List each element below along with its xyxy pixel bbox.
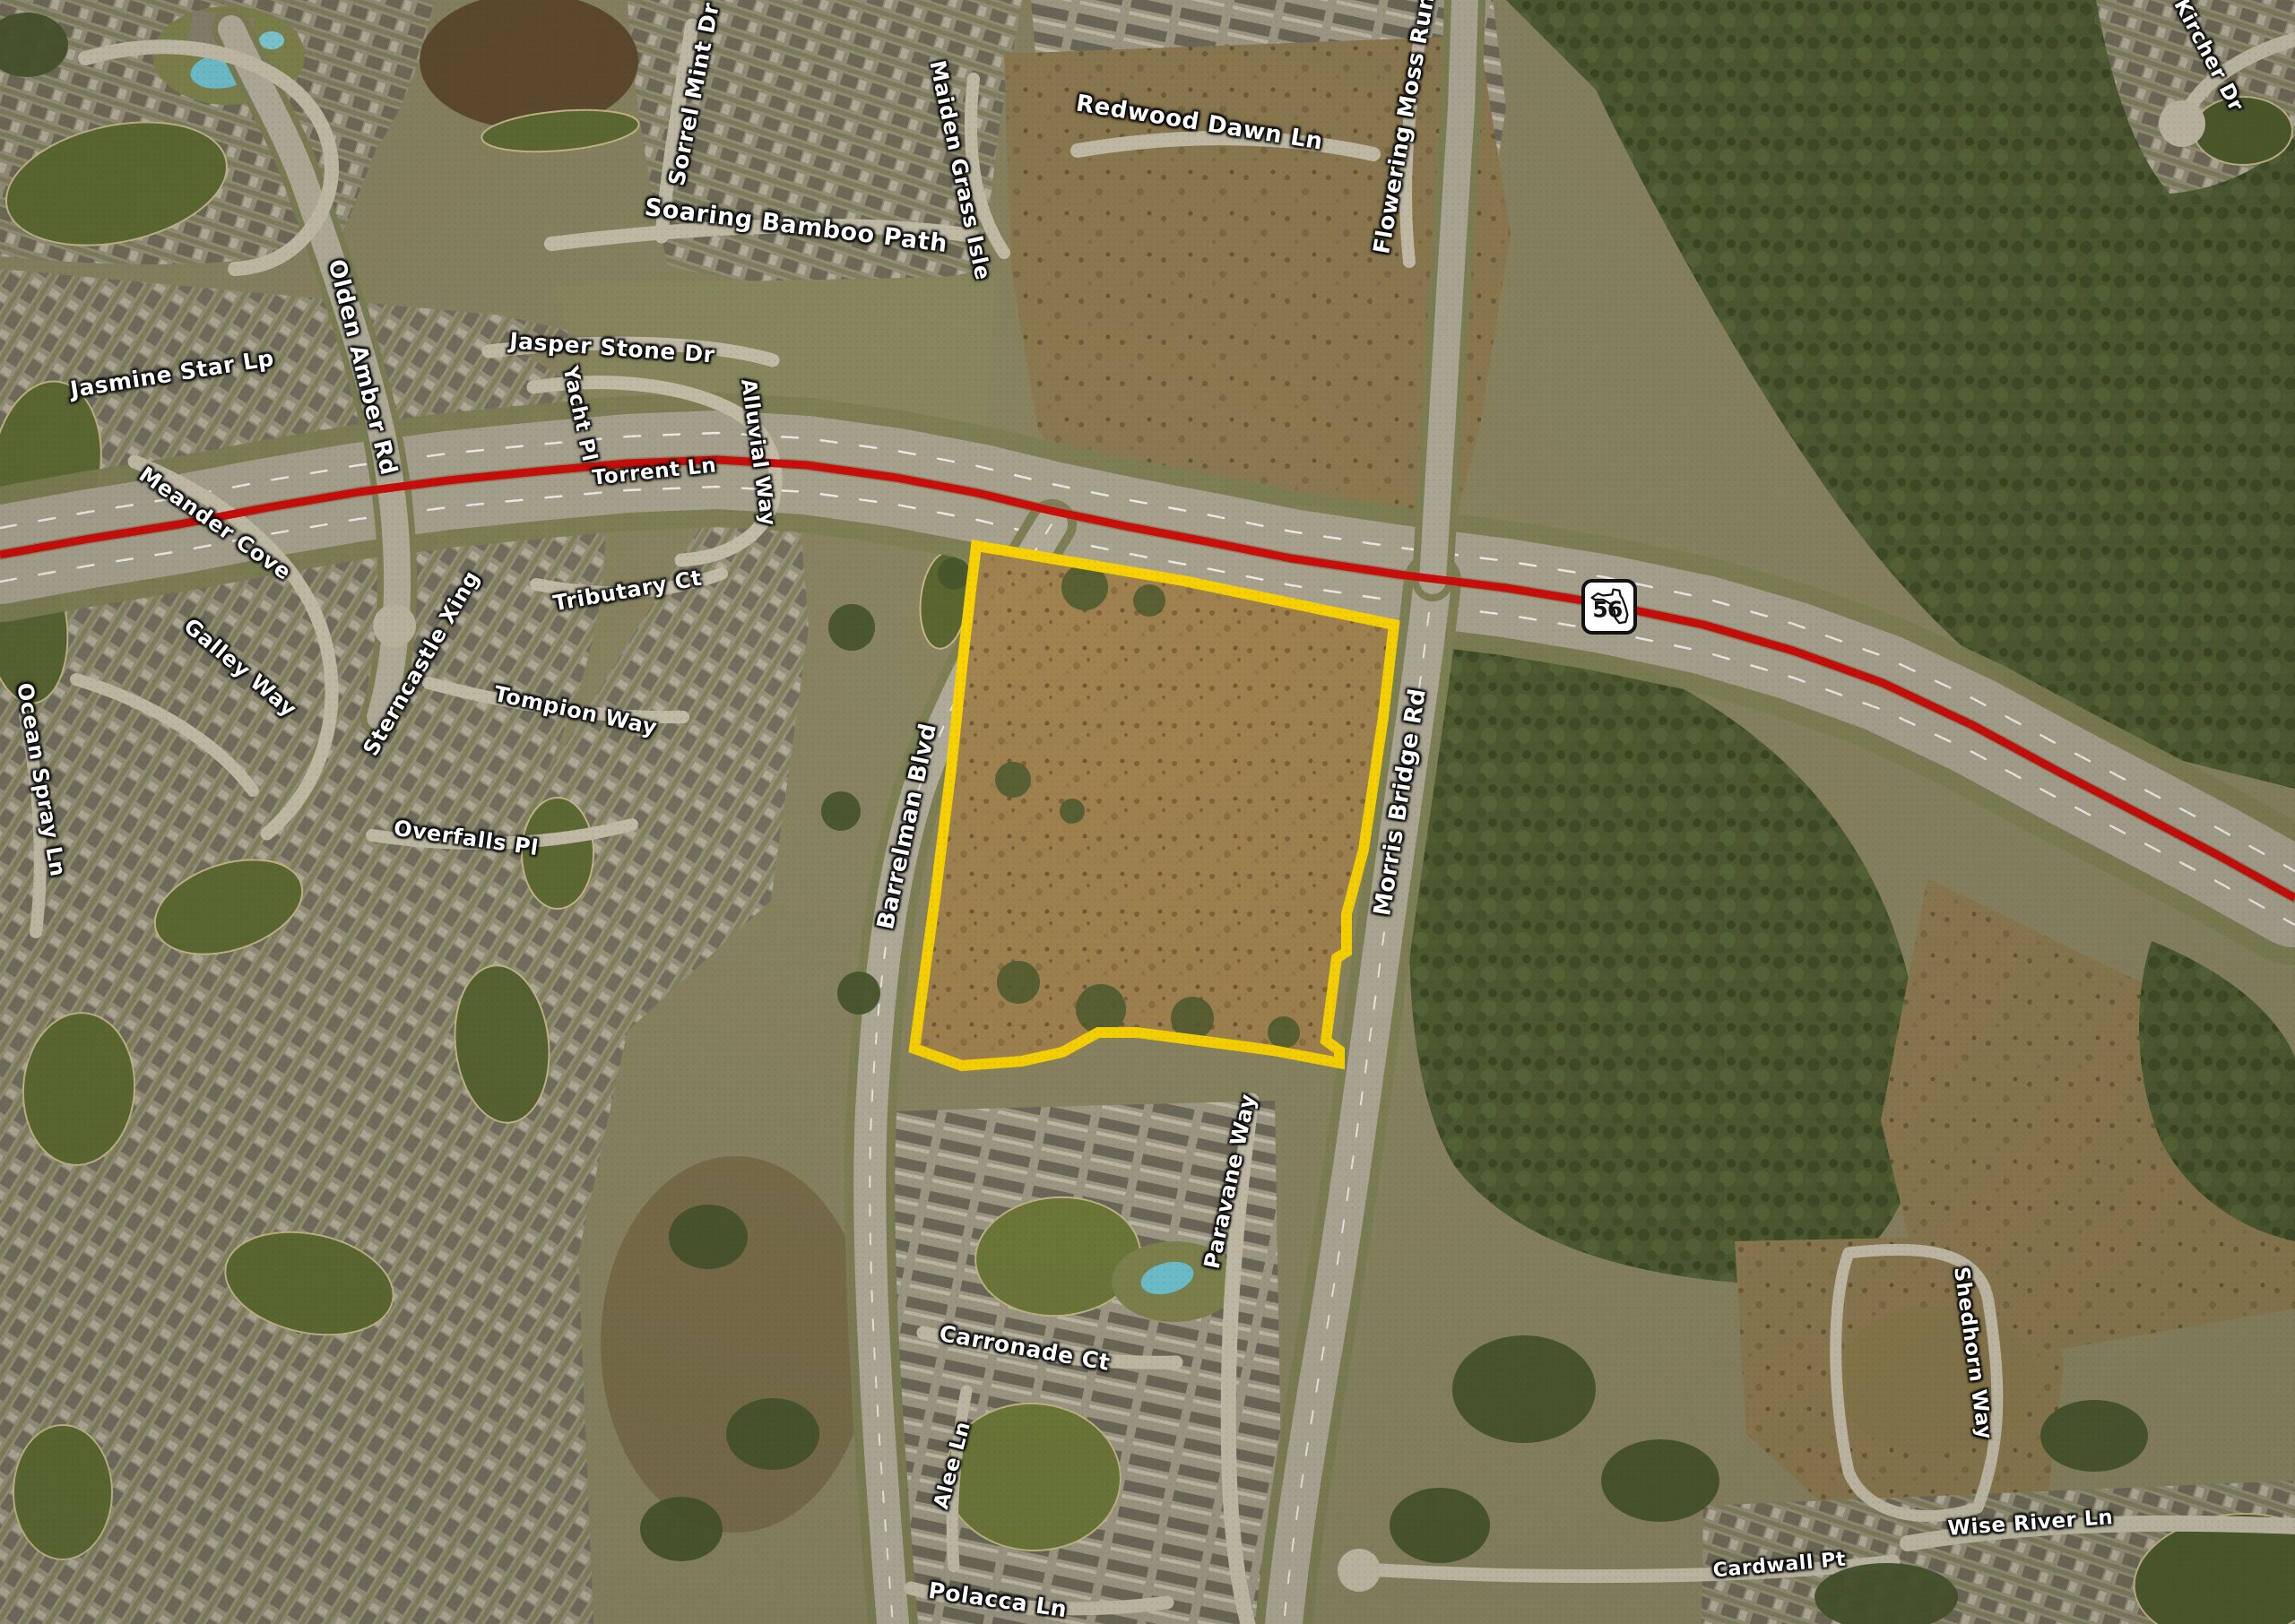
street-label: Jasper Stone Dr xyxy=(509,330,716,367)
street-label: Kircher Dr xyxy=(2169,0,2246,116)
street-label: Morris Bridge Rd xyxy=(1371,687,1430,917)
street-label: Wise River Ln xyxy=(1947,1507,2114,1540)
street-label: Sterncastle Xing xyxy=(359,567,483,759)
street-label: Paravane Way xyxy=(1201,1092,1260,1270)
street-label: Alluvial Way xyxy=(737,377,778,527)
street-label: Polacca Ln xyxy=(927,1579,1069,1620)
route-56-shield: 56 xyxy=(1581,579,1637,635)
street-label: Flowering Moss Run xyxy=(1370,0,1438,255)
route-number: 56 xyxy=(1592,596,1622,622)
aerial-map-exhibit: Jasmine Star LpOlden Amber RdJasper Ston… xyxy=(0,0,2295,1624)
street-label: Barrelman Blvd xyxy=(874,721,940,932)
street-label: Tompion Way xyxy=(492,683,659,739)
street-label: Cardwall Pt xyxy=(1712,1551,1847,1582)
street-label: Overfalls Pl xyxy=(393,817,541,859)
street-label: Galley Way xyxy=(180,615,300,721)
street-label: Ocean Spray Ln xyxy=(13,681,69,878)
street-label: Tributary Ct xyxy=(551,567,703,615)
street-label: Carronade Ct xyxy=(938,1322,1112,1374)
street-label: Soaring Bamboo Path xyxy=(643,195,948,256)
street-label: Olden Amber Rd xyxy=(324,257,400,478)
street-label: Torrent Ln xyxy=(592,455,718,488)
street-labels-layer: Jasmine Star LpOlden Amber RdJasper Ston… xyxy=(0,0,2295,1624)
street-label: Shedhorn Way xyxy=(1950,1266,1995,1441)
street-label: Jasmine Star Lp xyxy=(69,347,276,402)
street-label: Meander Cove xyxy=(135,463,295,584)
street-label: Redwood Dawn Ln xyxy=(1074,91,1324,153)
street-label: Alee Ln xyxy=(931,1420,974,1512)
street-label: Sorrel Mint Dr xyxy=(665,1,723,187)
street-label: Yacht Pl xyxy=(559,364,599,463)
